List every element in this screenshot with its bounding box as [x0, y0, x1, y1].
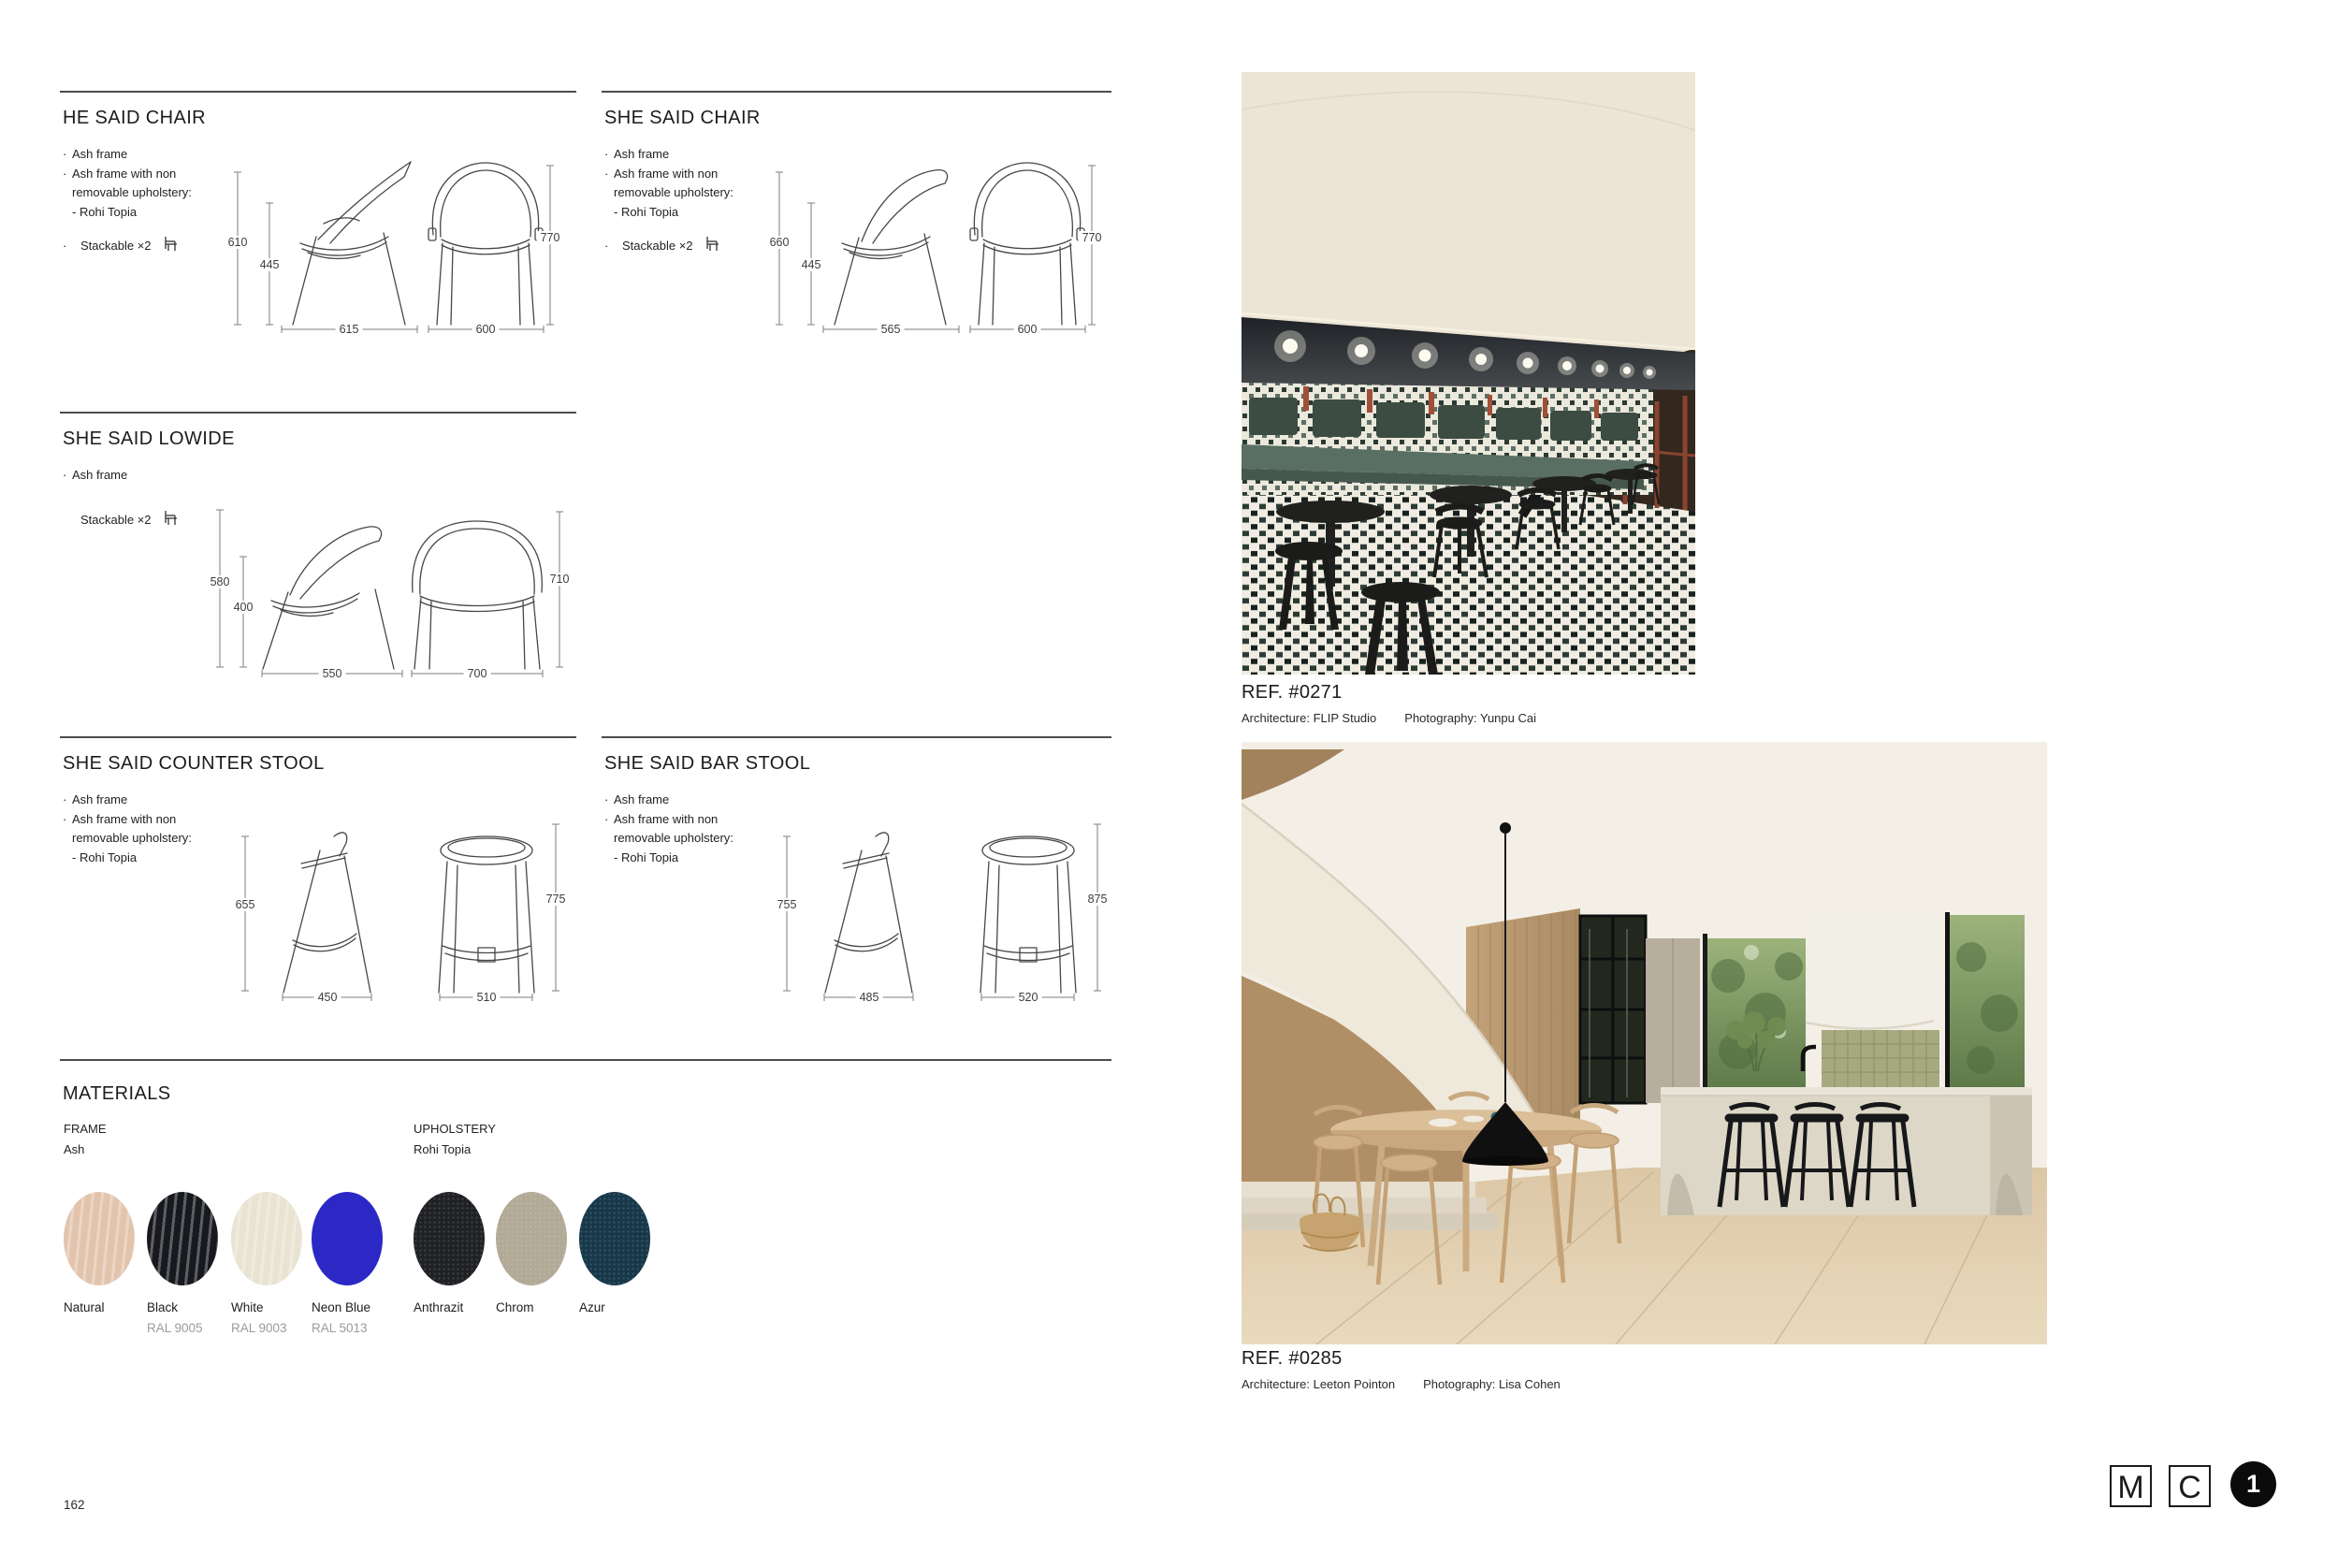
stackable-chair-icon	[160, 235, 181, 255]
product-title: HE SAID CHAIR	[63, 108, 206, 129]
dim-label-front-height: 875	[1084, 893, 1111, 906]
photo-caption: REF. #0285 Architecture: Leeton PointonP…	[1242, 1348, 1561, 1391]
photo-credits: Architecture: FLIP StudioPhotography: Yu…	[1242, 711, 1536, 725]
dim-label-front-width: 600	[472, 323, 500, 336]
dim-label-side-width: 485	[856, 991, 883, 1004]
spec-line: removable upholstery:	[63, 829, 192, 849]
swatch-white: White RAL 9003	[231, 1192, 312, 1335]
dim-label-side-height: 660	[766, 236, 793, 249]
section-she-said-chair: SHE SAID CHAIR ·Ash frame ·Ash frame wit…	[602, 91, 1111, 414]
spec-line: ·Ash frame	[63, 145, 192, 165]
swatch-azur: Azur	[579, 1192, 660, 1314]
catalog-page: HE SAID CHAIR ·Ash frame ·Ash frame with…	[0, 0, 2338, 1568]
dim-label-front-height: 770	[1079, 231, 1106, 244]
dim-label-seat-height: 445	[798, 258, 825, 271]
spec-line: removable upholstery:	[63, 183, 192, 203]
spec-line: ·Ash frame with non	[63, 165, 192, 184]
photo-credits: Architecture: Leeton PointonPhotography:…	[1242, 1377, 1561, 1391]
dim-label-side-width: 550	[319, 667, 346, 680]
stackable-chair-icon	[702, 235, 722, 255]
dim-label-side-height: 655	[232, 898, 259, 911]
dim-label-front-height: 770	[537, 231, 564, 244]
swatch-color	[496, 1192, 567, 1285]
dim-label-side-height: 580	[207, 575, 234, 588]
spec-line: ·Ash frame	[63, 466, 127, 486]
dim-label-side-width: 565	[878, 323, 905, 336]
swatch-color	[231, 1192, 302, 1285]
spec-line: removable upholstery:	[604, 183, 733, 203]
product-title: SHE SAID BAR STOOL	[604, 753, 810, 775]
swatch-natural: Natural	[64, 1192, 144, 1321]
spec-line: - Rohi Topia	[63, 203, 192, 223]
product-title: SHE SAID CHAIR	[604, 108, 761, 129]
dim-label-front-width: 600	[1014, 323, 1041, 336]
section-she-said-counter-stool: SHE SAID COUNTER STOOL ·Ash frame ·Ash f…	[60, 736, 576, 1061]
technical-drawing: 660 445 770 565 600	[725, 149, 1114, 350]
swatch-color	[414, 1192, 485, 1285]
spec-lines: ·Ash frame ·Ash frame with non removable…	[604, 791, 733, 867]
dim-label-front-width: 520	[1015, 991, 1042, 1004]
dim-label-front-width: 510	[473, 991, 501, 1004]
photo-restaurant	[1242, 72, 1695, 675]
page-number: 162	[64, 1498, 85, 1512]
technical-drawing: 755 875 485 520	[779, 813, 1116, 1014]
dim-label-side-height: 610	[225, 236, 252, 249]
spec-line: removable upholstery:	[604, 829, 733, 849]
stackable-note: · Stackable ×2	[63, 235, 181, 255]
swatch-black: Black RAL 9005	[147, 1192, 227, 1335]
logo-m: M	[2110, 1465, 2152, 1507]
section-materials: MATERIALS FRAMEAsh UPHOLSTERYRohi Topia …	[60, 1059, 1111, 1370]
spec-line: ·Ash frame	[604, 145, 733, 165]
dim-label-side-width: 615	[336, 323, 363, 336]
technical-drawing: 655 775 450 510	[238, 813, 574, 1014]
dim-label-side-height: 755	[774, 898, 801, 911]
spec-line: ·Ash frame with non	[63, 810, 192, 830]
stackable-note: · Stackable ×2	[604, 235, 722, 255]
swatch-color	[64, 1192, 135, 1285]
swatch-anthrazit: Anthrazit	[414, 1192, 494, 1314]
logo-c: C	[2169, 1465, 2211, 1507]
section-he-said-chair: HE SAID CHAIR ·Ash frame ·Ash frame with…	[60, 91, 576, 414]
spec-lines: ·Ash frame ·Ash frame with non removable…	[63, 791, 192, 867]
spec-lines: ·Ash frame ·Ash frame with non removable…	[604, 145, 733, 222]
spec-lines: ·Ash frame	[63, 466, 127, 486]
dim-label-front-width: 700	[464, 667, 491, 680]
spec-line: ·Ash frame with non	[604, 165, 733, 184]
spec-line: ·Ash frame with non	[604, 810, 733, 830]
product-title: SHE SAID LOWIDE	[63, 428, 235, 450]
technical-drawing: 610 445 770 615 600	[183, 149, 573, 350]
section-she-said-bar-stool: SHE SAID BAR STOOL ·Ash frame ·Ash frame…	[602, 736, 1111, 1061]
spec-line: - Rohi Topia	[63, 849, 192, 868]
swatch-chrom: Chrom	[496, 1192, 576, 1314]
dim-label-front-height: 775	[543, 893, 570, 906]
spec-line: ·Ash frame	[604, 791, 733, 810]
upholstery-group-label: UPHOLSTERYRohi Topia	[414, 1119, 496, 1160]
photo-caption: REF. #0271 Architecture: FLIP StudioPhot…	[1242, 682, 1536, 725]
frame-group-label: FRAMEAsh	[64, 1119, 107, 1160]
section-she-said-lowide: SHE SAID LOWIDE ·Ash frame Stackable ×2	[60, 412, 576, 738]
swatch-color	[147, 1192, 218, 1285]
swatch-color	[312, 1192, 383, 1285]
spec-line: - Rohi Topia	[604, 203, 733, 223]
page-index-badge: 1	[2230, 1461, 2276, 1507]
stackable-chair-icon	[160, 509, 181, 530]
spec-line: ·Ash frame	[63, 791, 192, 810]
materials-title: MATERIALS	[63, 1083, 170, 1105]
spec-line: - Rohi Topia	[604, 849, 733, 868]
photo-ref: REF. #0271	[1242, 682, 1536, 704]
product-title: SHE SAID COUNTER STOOL	[63, 753, 325, 775]
photo-kitchen	[1242, 742, 2047, 1344]
dim-label-seat-height: 400	[230, 601, 257, 614]
swatch-neon-blue: Neon Blue RAL 5013	[312, 1192, 392, 1335]
stackable-note: Stackable ×2	[63, 509, 181, 530]
swatch-color	[579, 1192, 650, 1285]
technical-drawing: 580 400 710 550 700	[210, 502, 565, 685]
photo-ref: REF. #0285	[1242, 1348, 1561, 1370]
spec-lines: ·Ash frame ·Ash frame with non removable…	[63, 145, 192, 222]
dim-label-seat-height: 445	[256, 258, 283, 271]
dim-label-side-width: 450	[314, 991, 341, 1004]
dim-label-front-height: 710	[546, 573, 574, 586]
